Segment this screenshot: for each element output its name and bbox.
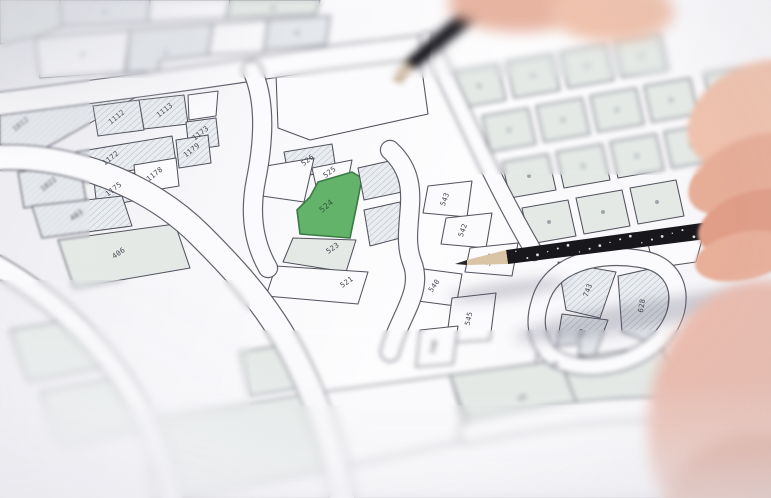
- pencil-speckle: [515, 251, 516, 252]
- parcel-number-dot: [164, 50, 168, 54]
- pencil-speckle: [547, 251, 548, 252]
- parcel: [148, 0, 230, 22]
- pencil-speckle: [609, 242, 610, 243]
- parcel-number-dot: [527, 174, 531, 178]
- pencil-speckle: [629, 235, 632, 238]
- parcel-number-dot: [639, 54, 643, 58]
- pencil-speckle: [651, 239, 653, 241]
- parcel-number-dot: [271, 6, 275, 10]
- parcel-number-dot: [585, 64, 589, 68]
- pencil-speckle: [641, 242, 642, 243]
- parcel-number-dot: [295, 31, 299, 35]
- pencil-speckle: [536, 253, 539, 256]
- parcel: [208, 20, 268, 55]
- pencil-speckle: [557, 247, 559, 249]
- road-edge: [0, 262, 172, 498]
- parcel-number-dot: [507, 128, 511, 132]
- parcel-number-dot: [581, 164, 585, 168]
- pencil-speckle: [598, 244, 601, 247]
- parcel-number-dot: [531, 74, 535, 78]
- top-hand: [448, 0, 674, 42]
- pencil-speckle: [526, 257, 528, 259]
- pencil-speckle: [619, 238, 621, 240]
- pencil-speckle: [579, 251, 580, 252]
- parcel: [188, 91, 218, 120]
- pencil-speckle: [693, 235, 696, 238]
- parcel-number-dot: [103, 10, 107, 14]
- photo-cadastral-map: 1012111211131173117211791178117510224034…: [0, 0, 771, 498]
- pencil-graphite-tip: [455, 260, 467, 265]
- parcel-number-dot: [547, 220, 551, 224]
- parcel-number-dot: [635, 154, 639, 158]
- pencil-speckle: [681, 229, 683, 231]
- pencil-speckle: [589, 248, 591, 250]
- parcel-number-dot: [655, 200, 659, 204]
- parcel-521: [266, 266, 368, 304]
- parcel-number-dot: [81, 53, 85, 57]
- pencil-speckle: [567, 244, 570, 247]
- map-scene: 1012111211131173117211791178117510224034…: [0, 0, 771, 498]
- parcel-number-dot: [669, 98, 673, 102]
- parcel-number-dot: [601, 210, 605, 214]
- parcel-number-dot: [477, 84, 481, 88]
- pencil-speckle: [672, 233, 673, 234]
- pencil-speckle: [661, 235, 664, 238]
- parcel-number-dot: [561, 118, 565, 122]
- parcel-number-dot: [615, 108, 619, 112]
